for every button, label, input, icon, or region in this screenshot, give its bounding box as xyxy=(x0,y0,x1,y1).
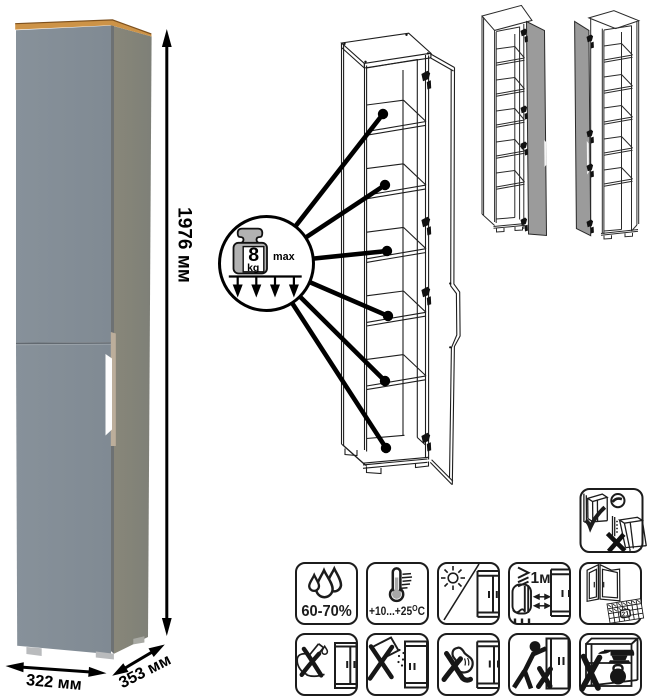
svg-text:21: 21 xyxy=(621,611,630,619)
svg-text:1976 мм: 1976 мм xyxy=(174,207,195,283)
svg-text:kg: kg xyxy=(247,262,259,274)
svg-text:max: max xyxy=(273,251,295,263)
svg-text:322 мм: 322 мм xyxy=(25,671,82,694)
svg-text:1м: 1м xyxy=(531,570,551,587)
svg-text:60-70%: 60-70% xyxy=(301,603,352,620)
